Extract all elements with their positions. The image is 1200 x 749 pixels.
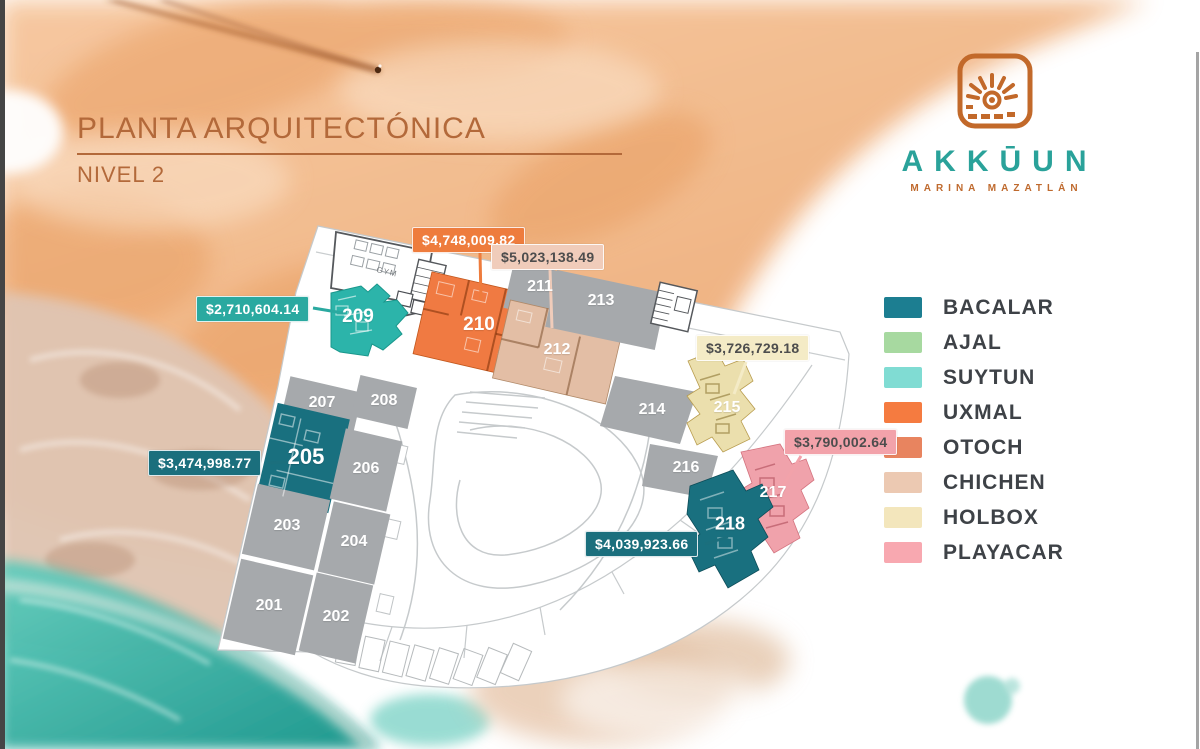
legend-swatch-ajal bbox=[884, 332, 922, 353]
price-label-unit-212: $5,023,138.49 bbox=[491, 244, 604, 270]
page-title: PLANTA ARQUITECTÓNICA bbox=[77, 112, 622, 146]
price-label-unit-205: $3,474,998.77 bbox=[148, 450, 261, 476]
legend-row-holbox: HOLBOX bbox=[884, 500, 1064, 535]
unit-number-215: 215 bbox=[714, 399, 741, 417]
unit-number-217: 217 bbox=[760, 484, 787, 502]
legend-label: PLAYACAR bbox=[943, 541, 1064, 565]
unit-number-214: 214 bbox=[639, 401, 666, 419]
unit-number-208: 208 bbox=[371, 392, 398, 410]
unit-number-206: 206 bbox=[353, 460, 380, 478]
screen-edge-left bbox=[0, 0, 5, 749]
price-label-unit-217: $3,790,002.64 bbox=[784, 429, 897, 455]
legend-label: OTOCH bbox=[943, 436, 1023, 460]
legend-swatch-suytun bbox=[884, 367, 922, 388]
unit-number-216: 216 bbox=[673, 459, 700, 477]
title-block: PLANTA ARQUITECTÓNICA NIVEL 2 bbox=[77, 112, 622, 188]
level-subtitle: NIVEL 2 bbox=[77, 162, 622, 188]
price-label-unit-209: $2,710,604.14 bbox=[196, 296, 309, 322]
legend-swatch-playacar bbox=[884, 542, 922, 563]
unit-number-202: 202 bbox=[323, 608, 350, 626]
price-label-unit-218: $4,039,923.66 bbox=[585, 531, 698, 557]
legend-row-chichen: CHICHEN bbox=[884, 465, 1064, 500]
legend-label: SUYTUN bbox=[943, 366, 1035, 390]
screen-edge-right bbox=[1196, 52, 1199, 749]
legend-row-uxmal: UXMAL bbox=[884, 395, 1064, 430]
legend-swatch-uxmal bbox=[884, 402, 922, 423]
legend-row-otoch: OTOCH bbox=[884, 430, 1064, 465]
unit-number-205: 205 bbox=[288, 444, 325, 470]
brand-tagline: MARINA MAZATLÁN bbox=[884, 183, 1104, 194]
legend-label: AJAL bbox=[943, 331, 1002, 355]
legend-row-playacar: PLAYACAR bbox=[884, 535, 1064, 570]
legend-row-ajal: AJAL bbox=[884, 325, 1064, 360]
floorplan-page: GYM bbox=[0, 0, 1200, 749]
brand-logo-icon bbox=[884, 50, 1104, 134]
unit-number-218: 218 bbox=[715, 514, 745, 535]
price-label-unit-215: $3,726,729.18 bbox=[696, 335, 809, 361]
legend-label: BACALAR bbox=[943, 296, 1054, 320]
unit-number-211: 211 bbox=[527, 278, 553, 296]
brand-name: AKKŪUN bbox=[884, 145, 1104, 179]
legend-label: CHICHEN bbox=[943, 471, 1046, 495]
stairs-b bbox=[651, 282, 697, 331]
legend-swatch-bacalar bbox=[884, 297, 922, 318]
connector-210 bbox=[480, 253, 481, 300]
unit-number-209: 209 bbox=[342, 306, 374, 328]
unit-number-207: 207 bbox=[309, 394, 336, 412]
legend-row-bacalar: BACALAR bbox=[884, 290, 1064, 325]
unit-number-213: 213 bbox=[588, 292, 615, 310]
legend-swatch-chichen bbox=[884, 472, 922, 493]
unit-type-legend: BACALAR AJAL SUYTUN UXMAL OTOCH CHICHEN … bbox=[884, 290, 1064, 570]
unit-number-212: 212 bbox=[544, 341, 571, 359]
legend-label: HOLBOX bbox=[943, 506, 1039, 530]
legend-swatch-holbox bbox=[884, 507, 922, 528]
title-underline bbox=[77, 153, 622, 155]
legend-label: UXMAL bbox=[943, 401, 1023, 425]
unit-number-201: 201 bbox=[256, 597, 283, 615]
unit-number-203: 203 bbox=[274, 517, 301, 535]
legend-row-suytun: SUYTUN bbox=[884, 360, 1064, 395]
unit-number-204: 204 bbox=[341, 533, 368, 551]
brand-logo: AKKŪUN MARINA MAZATLÁN bbox=[884, 50, 1104, 194]
unit-number-210: 210 bbox=[463, 314, 495, 336]
